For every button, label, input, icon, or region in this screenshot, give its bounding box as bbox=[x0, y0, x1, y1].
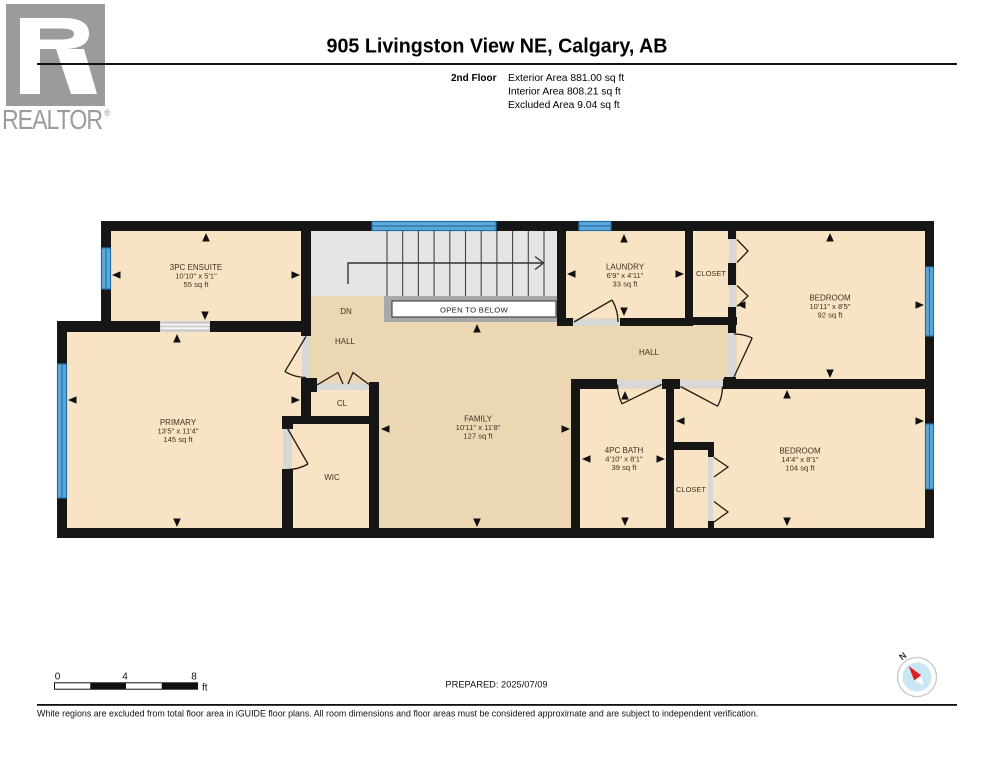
svg-text:127 sq ft: 127 sq ft bbox=[463, 432, 493, 441]
svg-text:92 sq ft: 92 sq ft bbox=[818, 311, 844, 320]
svg-text:PREPARED: 2025/07/09: PREPARED: 2025/07/09 bbox=[445, 680, 547, 690]
svg-text:Excluded Area 9.04 sq ft: Excluded Area 9.04 sq ft bbox=[508, 100, 620, 111]
svg-text:ft: ft bbox=[202, 683, 208, 694]
svg-text:CLOSET: CLOSET bbox=[696, 269, 726, 278]
svg-text:Exterior Area 881.00 sq ft: Exterior Area 881.00 sq ft bbox=[508, 73, 624, 84]
svg-text:HALL: HALL bbox=[639, 348, 660, 357]
svg-text:39 sq ft: 39 sq ft bbox=[612, 463, 638, 472]
svg-text:White regions are excluded fro: White regions are excluded from total fl… bbox=[37, 708, 758, 718]
svg-text:CLOSET: CLOSET bbox=[676, 485, 706, 494]
svg-text:0: 0 bbox=[55, 672, 61, 683]
svg-text:CL: CL bbox=[337, 399, 348, 408]
svg-text:WIC: WIC bbox=[324, 473, 340, 482]
svg-text:DN: DN bbox=[340, 307, 352, 316]
svg-text:Interior Area 808.21 sq ft: Interior Area 808.21 sq ft bbox=[508, 87, 621, 98]
svg-text:REALTOR: REALTOR bbox=[2, 104, 102, 135]
svg-text:145 sq ft: 145 sq ft bbox=[163, 435, 193, 444]
svg-text:8: 8 bbox=[191, 672, 197, 683]
svg-text:55 sq ft: 55 sq ft bbox=[184, 280, 210, 289]
svg-text:4: 4 bbox=[122, 672, 128, 683]
svg-text:2nd Floor: 2nd Floor bbox=[451, 73, 497, 84]
svg-text:104 sq ft: 104 sq ft bbox=[785, 464, 815, 473]
svg-text:HALL: HALL bbox=[335, 337, 356, 346]
svg-text:905 Livingston View NE, Calgar: 905 Livingston View NE, Calgary, AB bbox=[327, 36, 668, 58]
svg-text:33 sq ft: 33 sq ft bbox=[613, 280, 639, 289]
svg-text:OPEN TO BELOW: OPEN TO BELOW bbox=[440, 306, 509, 315]
svg-text:®: ® bbox=[104, 108, 111, 118]
